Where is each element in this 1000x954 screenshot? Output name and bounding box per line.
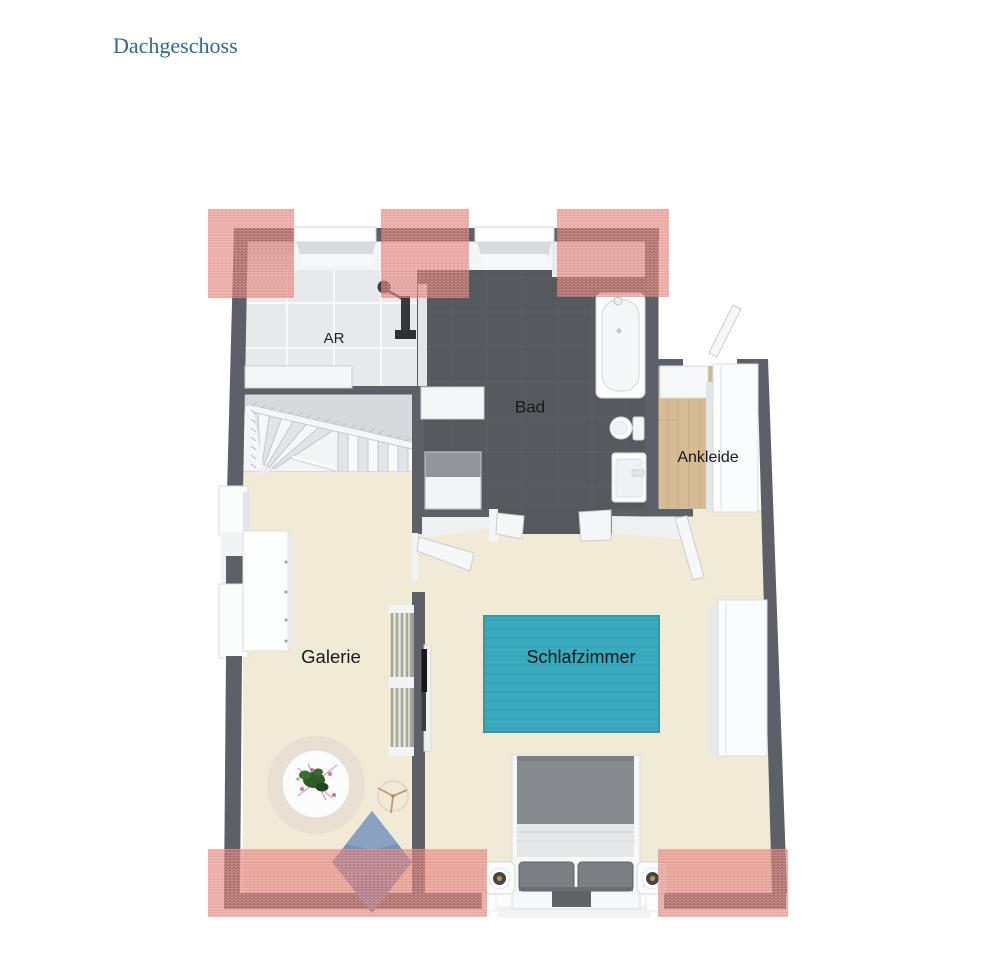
svg-text:Galerie: Galerie xyxy=(301,646,361,667)
svg-text:Bad: Bad xyxy=(515,398,545,417)
svg-text:Schlafzimmer: Schlafzimmer xyxy=(526,647,635,667)
svg-text:AR: AR xyxy=(324,330,345,347)
svg-text:Ankleide: Ankleide xyxy=(677,449,738,466)
